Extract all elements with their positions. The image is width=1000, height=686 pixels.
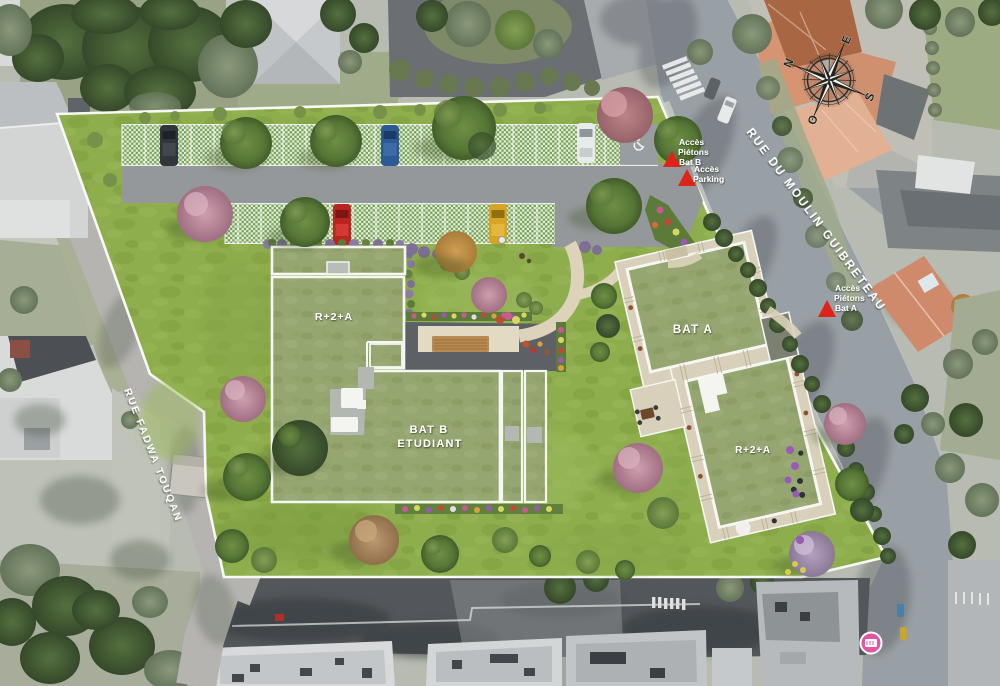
svg-text:Accès: Accès: [694, 164, 719, 174]
svg-text:Accès: Accès: [679, 137, 704, 147]
svg-text:BAT A: BAT A: [673, 324, 713, 336]
svg-text:Piétons: Piétons: [678, 147, 709, 157]
svg-text:ETUDIANT: ETUDIANT: [397, 438, 462, 450]
svg-text:Bat A: Bat A: [835, 303, 857, 313]
svg-text:BAT B: BAT B: [410, 424, 449, 436]
svg-text:R+2+A: R+2+A: [315, 311, 353, 323]
svg-text:Parking: Parking: [693, 174, 724, 184]
svg-text:Piétons: Piétons: [834, 293, 865, 303]
svg-text:R+2+A: R+2+A: [735, 445, 771, 456]
